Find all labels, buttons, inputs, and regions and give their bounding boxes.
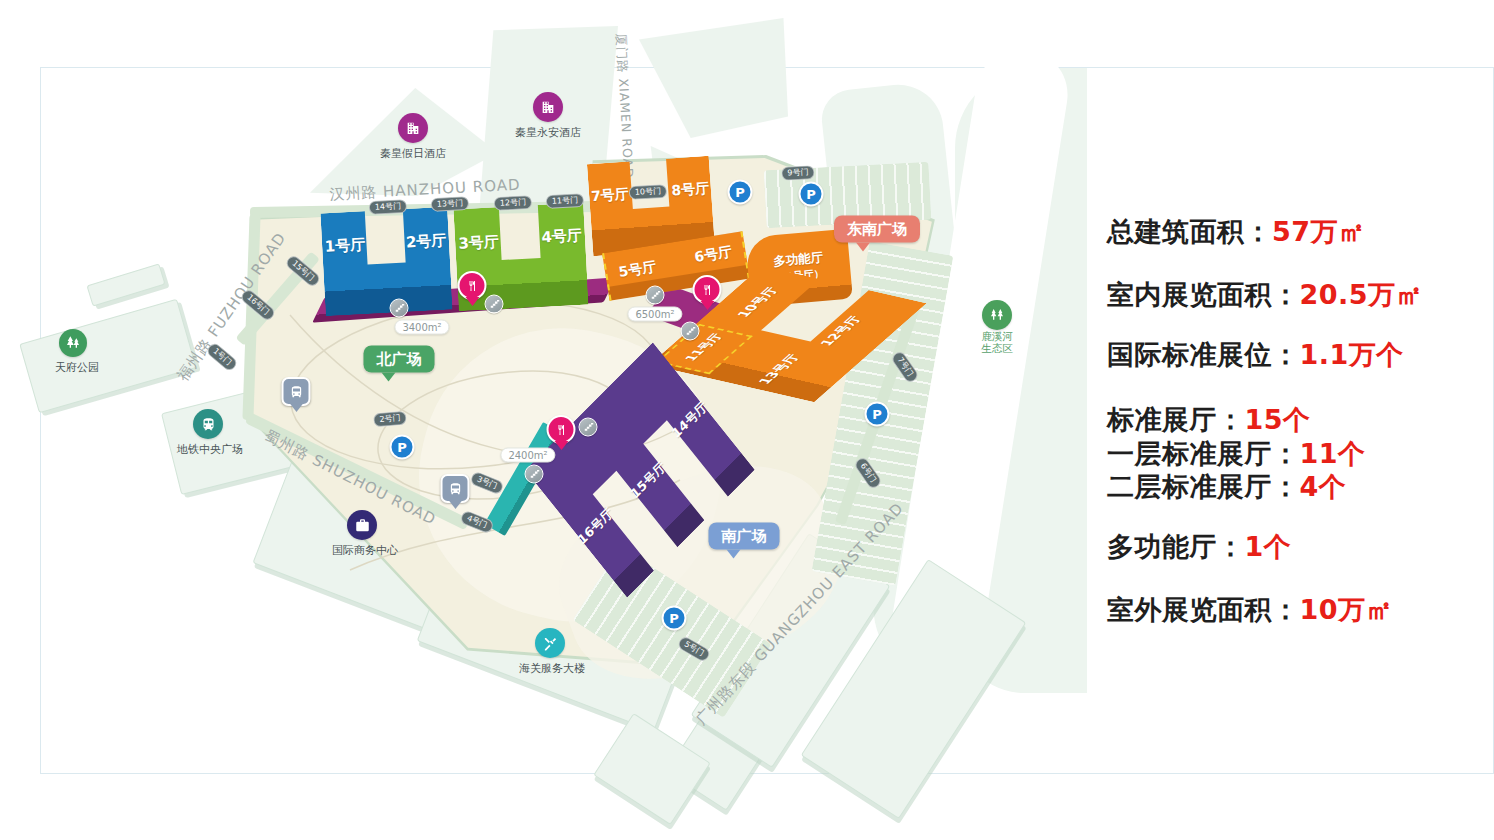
stat-floor2-halls: 二层标准展厅：4个 [1107, 469, 1346, 505]
hotel-yongan-label: 秦皇永安酒店 [515, 125, 581, 140]
stat-value: 4个 [1300, 471, 1347, 502]
stat-floor1-halls: 一层标准展厅：11个 [1107, 436, 1366, 472]
restaurant-pin [693, 275, 722, 304]
hall-3-label: 3号厅 [458, 232, 499, 253]
eco-trees-icon [982, 300, 1012, 330]
stat-indoor-area: 室内展览面积：20.5万㎡ [1107, 277, 1423, 313]
south-plaza-label: 南广场 [722, 527, 767, 545]
gate-12: 12号门 [494, 195, 533, 211]
gate-11: 11号门 [546, 193, 585, 209]
business-center-label: 国际商务中心 [332, 543, 398, 558]
restaurant-pin [458, 271, 487, 300]
stat-total-area: 总建筑面积：57万㎡ [1107, 214, 1366, 250]
stat-multifunction: 多功能厅：1个 [1107, 529, 1291, 565]
stat-label: 室外展览面积： [1107, 594, 1300, 625]
site-map: 汉州路 HANZHOU ROAD 福州路 FUZHOU ROAD 厦门路 XIA… [0, 0, 1494, 840]
hall-8-label: 8号厅 [671, 180, 710, 201]
bus-stop-pin [441, 474, 470, 503]
eco-area-label: 鹿溪河 生态区 [981, 330, 1013, 354]
north-plaza-label: 北广场 [377, 350, 422, 368]
gate-13: 13号门 [431, 196, 470, 212]
stat-label: 标准展厅： [1107, 404, 1245, 435]
briefcase-icon [347, 510, 377, 540]
stairs-icon [485, 295, 504, 314]
fork-knife-icon [547, 415, 576, 444]
stat-label: 二层标准展厅： [1107, 471, 1300, 502]
stat-value: 1.1万个 [1300, 339, 1404, 370]
gate-9: 9号门 [781, 165, 815, 181]
stat-label: 一层标准展厅： [1107, 438, 1300, 469]
stat-value: 10万㎡ [1300, 594, 1394, 625]
exhibition-center-map-page: { "stats": { "items": [ {"label":"总建筑面积：… [0, 0, 1494, 840]
area-label-2400: 2400m² [500, 448, 555, 463]
parking-icon: P [865, 402, 890, 427]
stairs-icon [525, 465, 544, 484]
hall-2-label: 2号厅 [405, 231, 446, 252]
tianfu-park-label: 天府公园 [55, 360, 99, 375]
parking-icon: P [662, 606, 687, 631]
hall-1-label: 1号厅 [324, 236, 365, 257]
stat-standard-halls: 标准展厅：15个 [1107, 402, 1311, 438]
bus-stop-pin [282, 377, 311, 406]
stat-label: 总建筑面积： [1107, 216, 1272, 247]
stairs-icon [390, 299, 409, 318]
area-label-6500: 6500m² [627, 307, 682, 322]
stat-label: 国际标准展位： [1107, 339, 1300, 370]
gate-10: 10号门 [629, 184, 668, 200]
stairs-icon [579, 418, 598, 437]
customs-building-label: 海关服务大楼 [519, 661, 585, 676]
hotel-icon [533, 92, 563, 122]
stat-booths: 国际标准展位：1.1万个 [1107, 337, 1404, 373]
fork-knife-icon [458, 271, 487, 300]
hall-1-2-face [320, 207, 452, 317]
metro-plaza-label: 地铁中央广场 [177, 442, 243, 457]
gate-14: 14号门 [369, 199, 408, 215]
stairs-icon [681, 322, 700, 341]
parking-icon: P [799, 182, 824, 207]
stat-value: 15个 [1245, 404, 1311, 435]
hall-4-label: 4号厅 [541, 226, 582, 247]
stairs-icon [646, 286, 665, 305]
hall-7-label: 7号厅 [590, 186, 629, 207]
fork-knife-icon [693, 275, 722, 304]
parking-icon: P [728, 180, 753, 205]
north-plaza-bubble: 北广场 [364, 346, 435, 373]
hotel-holiday-label: 秦皇假日酒店 [380, 146, 446, 161]
stat-value: 1个 [1245, 531, 1292, 562]
bus-icon [441, 474, 470, 503]
hotel-icon [398, 113, 428, 143]
parking-icon: P [390, 435, 415, 460]
southeast-plaza-label: 东南广场 [847, 220, 907, 238]
metro-train-icon [193, 409, 223, 439]
customs-icon [535, 628, 565, 658]
stat-label: 室内展览面积： [1107, 279, 1300, 310]
bus-icon [282, 377, 311, 406]
stat-label: 多功能厅： [1107, 531, 1245, 562]
hall-1-2-building: 1号厅 2号厅 [320, 207, 452, 317]
stat-outdoor-area: 室外展览面积：10万㎡ [1107, 592, 1393, 628]
stat-value: 20.5万㎡ [1300, 279, 1424, 310]
area-label-3400: 3400m² [394, 320, 449, 335]
stat-value: 11个 [1300, 438, 1366, 469]
southeast-plaza-bubble: 东南广场 [834, 216, 920, 243]
restaurant-pin [547, 415, 576, 444]
park-tree-icon [59, 329, 87, 357]
hall-6-label: 6号厅 [693, 243, 733, 267]
stat-value: 57万㎡ [1272, 216, 1366, 247]
south-plaza-bubble: 南广场 [709, 523, 780, 550]
hall-5-label: 5号厅 [617, 258, 657, 282]
